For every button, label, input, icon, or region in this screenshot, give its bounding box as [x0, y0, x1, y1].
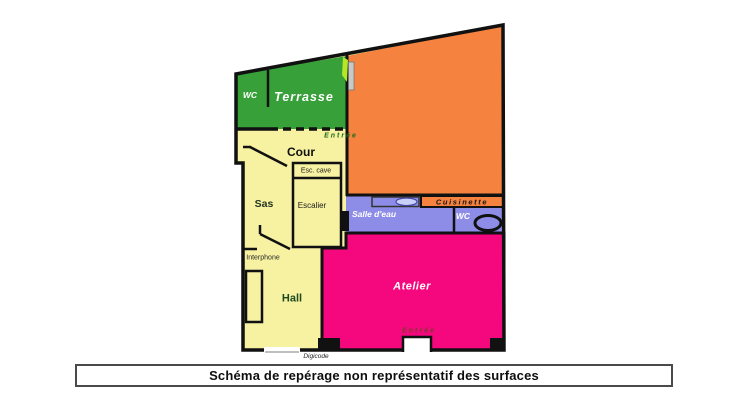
room-label-sas: Sas [255, 199, 274, 210]
wall-block-right [490, 338, 504, 351]
room-label-wc-terrasse: WC [243, 91, 257, 100]
door-terrasse [349, 62, 355, 90]
room-label-hall: Hall [282, 294, 302, 305]
floor-plan-page: WC Terrasse Entrée Cour Esc. cave Sas Es… [0, 0, 750, 420]
annotation-entree-haut: Entrée [324, 133, 358, 140]
room-label-cuisinette: Cuisinette [436, 198, 488, 206]
room-label-escalier: Escalier [298, 202, 326, 210]
door-marker-salle-deau [342, 211, 349, 231]
room-label-salle-deau: Salle d'eau [352, 210, 396, 219]
annotation-digicode: Digicode [303, 354, 328, 361]
atelier-entrance-notch [403, 337, 431, 352]
annotation-interphone: Interphone [246, 255, 279, 262]
room-label-cour: Cour [287, 146, 315, 158]
caption-text: Schéma de repérage non représentatif des… [209, 368, 539, 383]
sink-icon [396, 198, 417, 206]
wall-block-left [318, 338, 340, 351]
room-label-wc-bains: WC [456, 212, 470, 221]
room-label-terrasse: Terrasse [274, 91, 334, 104]
hall-door-opening [264, 347, 300, 354]
room-label-atelier: Atelier [393, 282, 431, 293]
annotation-entree-bas: Entrée [402, 328, 436, 335]
toilet-icon [475, 216, 501, 231]
room-label-esc-cave: Esc. cave [301, 168, 331, 175]
caption-box: Schéma de repérage non représentatif des… [75, 364, 673, 387]
